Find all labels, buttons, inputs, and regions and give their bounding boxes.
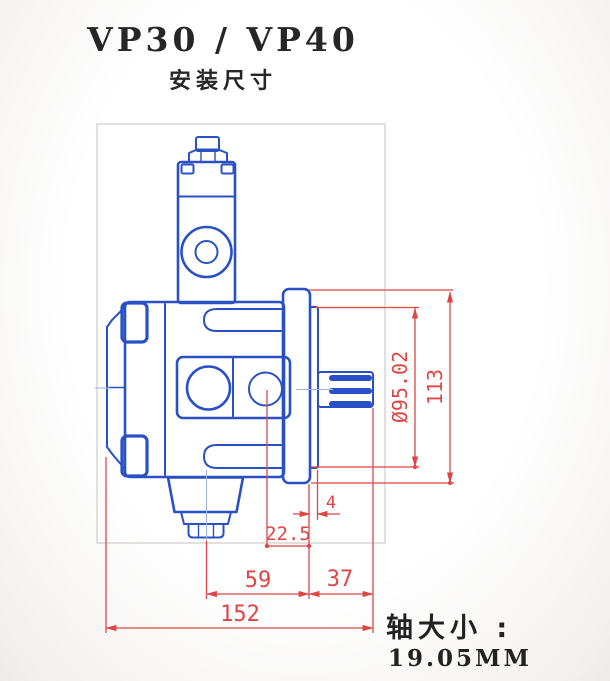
valve-locknut-facets — [201, 151, 215, 163]
centerlines — [95, 388, 333, 542]
body-bottom-slot — [204, 445, 284, 468]
dim-label-pilot-step: 4 — [326, 493, 336, 513]
shaft-size-value: 19.05MM — [388, 645, 532, 672]
body-top-slot — [204, 309, 284, 331]
shaft-spline-tooth — [329, 401, 372, 407]
dim-label-pilot-diameter: Ø95.02 — [388, 351, 412, 423]
dim-label-flange-height: 113 — [423, 369, 447, 405]
drawing-border — [97, 124, 385, 543]
relief-valve — [178, 137, 235, 303]
port-block — [177, 357, 290, 418]
dim-label-overall-width: 152 — [220, 602, 260, 627]
dimensions: Ø95.02 113 4 22.5 59 37 152 — [106, 290, 454, 633]
suction-flange — [168, 478, 243, 513]
shaft-size-label: 轴大小 : — [386, 606, 512, 645]
page: VP30 / VP40 安装尺寸 — [0, 0, 610, 681]
pump-part — [95, 137, 373, 542]
shaft-spline-tooth — [329, 388, 372, 394]
valve-port-circle-outer — [182, 227, 232, 277]
mounting-flange — [283, 289, 318, 483]
flange-plate — [283, 289, 310, 483]
valve-body — [178, 162, 235, 303]
pump-body — [107, 302, 284, 477]
valve-port-circle-inner — [196, 241, 218, 263]
dim-label-center-to-flange: 59 — [245, 568, 272, 593]
valve-shoulder-left — [182, 165, 194, 174]
inlet-port-circle — [187, 367, 230, 410]
dimension-drawing: Ø95.02 113 4 22.5 59 37 152 — [0, 0, 610, 681]
dim-label-port-to-flange: 22.5 — [265, 523, 311, 545]
dim-label-flange-to-shaft: 37 — [327, 567, 354, 592]
extension-lines — [106, 290, 454, 633]
valve-shoulder-right — [222, 165, 234, 174]
shaft-spline-tooth — [329, 375, 372, 381]
suction-port — [168, 478, 243, 538]
outlet-port-circle — [249, 373, 282, 406]
